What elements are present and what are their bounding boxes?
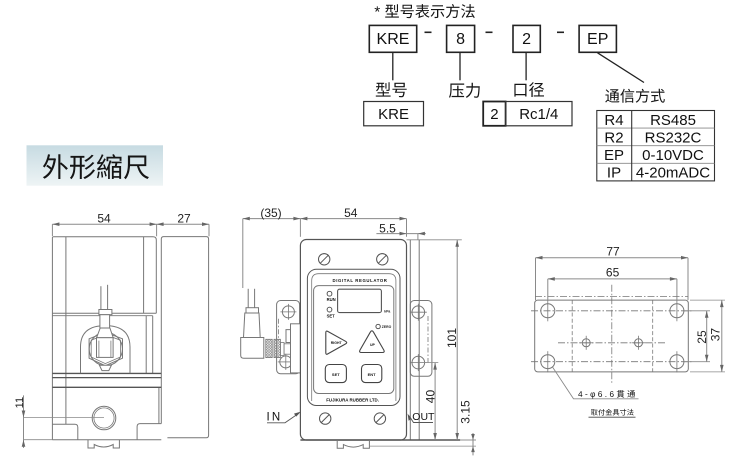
svg-text:RS485: RS485 (650, 112, 696, 129)
svg-text:11: 11 (14, 397, 26, 408)
svg-text:kPa: kPa (384, 309, 390, 313)
svg-text:KRE: KRE (378, 106, 409, 123)
svg-text:77: 77 (606, 244, 620, 258)
svg-text:RS232C: RS232C (645, 129, 702, 146)
svg-text:SET: SET (327, 313, 336, 318)
svg-text:IP: IP (607, 165, 621, 182)
svg-text:40: 40 (423, 390, 437, 404)
svg-text:OUT: OUT (412, 411, 435, 423)
svg-text:54: 54 (97, 212, 111, 226)
svg-text:37: 37 (709, 328, 723, 342)
svg-text:4-20mADC: 4-20mADC (636, 165, 710, 182)
svg-text:RUN: RUN (327, 297, 336, 302)
svg-text:2: 2 (522, 31, 531, 48)
svg-text:EP: EP (587, 31, 608, 48)
svg-text:3.15: 3.15 (459, 400, 473, 424)
svg-text:RIGHT: RIGHT (331, 341, 343, 345)
svg-text:(35): (35) (260, 206, 281, 220)
svg-text:25: 25 (695, 330, 709, 344)
svg-text:Rc1/4: Rc1/4 (519, 106, 558, 123)
svg-text:R4: R4 (604, 112, 623, 129)
svg-text:FUJIKURA RUBBER LTD.: FUJIKURA RUBBER LTD. (326, 397, 379, 402)
svg-text:2: 2 (490, 106, 498, 123)
svg-text:27: 27 (177, 212, 191, 226)
svg-text:8: 8 (456, 31, 465, 48)
svg-text:DIGITAL REGULATOR: DIGITAL REGULATOR (333, 278, 388, 283)
svg-text:IN: IN (267, 412, 283, 424)
svg-text:ZERO: ZERO (382, 325, 392, 329)
svg-text:54: 54 (344, 206, 358, 220)
svg-text:UP: UP (370, 343, 376, 347)
svg-text:R2: R2 (604, 129, 623, 146)
svg-text:SET: SET (332, 372, 340, 377)
svg-text:KRE: KRE (377, 31, 410, 48)
svg-text:0-10VDC: 0-10VDC (642, 147, 704, 164)
svg-text:101: 101 (445, 328, 459, 348)
svg-text:65: 65 (606, 266, 620, 280)
svg-text:EP: EP (604, 147, 624, 164)
svg-text:ENT: ENT (368, 372, 377, 377)
svg-text:5.5: 5.5 (379, 221, 396, 235)
